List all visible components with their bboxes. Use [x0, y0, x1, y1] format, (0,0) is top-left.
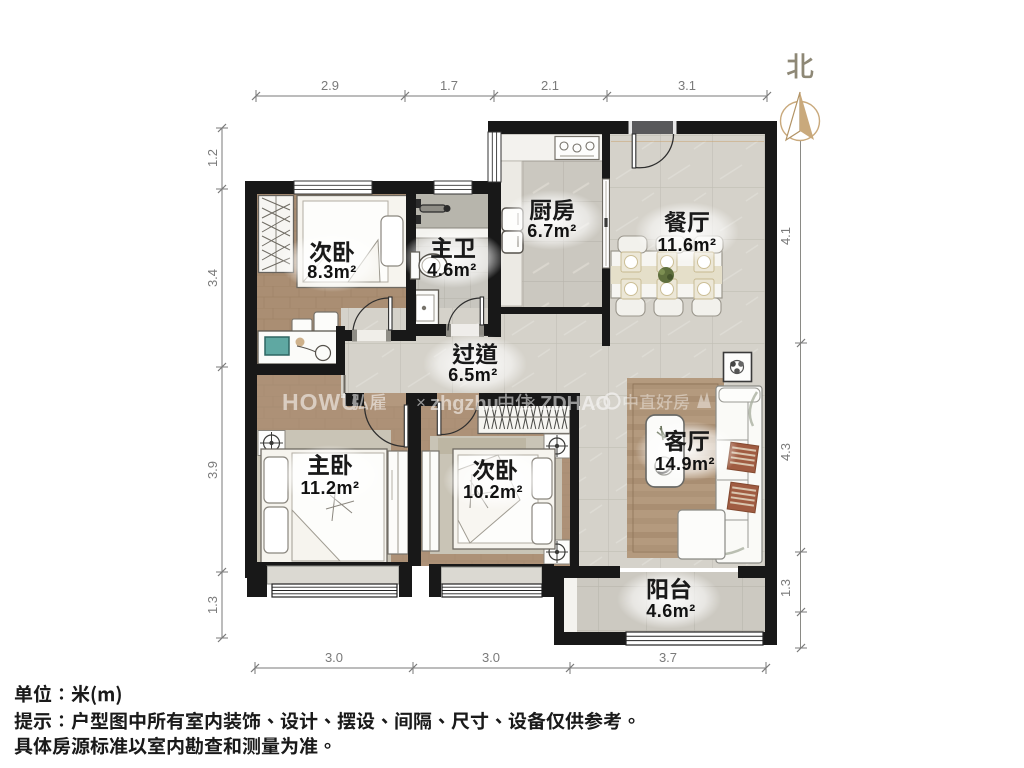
- svg-text:2.9: 2.9: [321, 78, 339, 93]
- svg-text:11.2m²: 11.2m²: [300, 478, 359, 498]
- svg-text:14.9m²: 14.9m²: [655, 454, 715, 474]
- svg-text:×: ×: [526, 393, 536, 412]
- svg-text:zhgzhu: zhgzhu: [430, 393, 499, 415]
- svg-text:3.4: 3.4: [205, 269, 220, 287]
- svg-text:4.6m²: 4.6m²: [646, 601, 696, 621]
- svg-text:3.0: 3.0: [482, 650, 500, 665]
- svg-text:1.2: 1.2: [205, 149, 220, 167]
- svg-text:×: ×: [416, 393, 426, 412]
- svg-text:3.0: 3.0: [325, 650, 343, 665]
- svg-text:3.9: 3.9: [205, 461, 220, 479]
- svg-text:6.5m²: 6.5m²: [448, 365, 498, 385]
- svg-text:8.3m²: 8.3m²: [307, 262, 357, 282]
- svg-text:HOWU: HOWU: [282, 389, 359, 415]
- svg-text:3.1: 3.1: [678, 78, 696, 93]
- svg-text:1.3: 1.3: [205, 596, 220, 614]
- svg-text:1.7: 1.7: [440, 78, 458, 93]
- svg-text:4.6m²: 4.6m²: [427, 260, 477, 280]
- svg-text:10.2m²: 10.2m²: [463, 482, 523, 502]
- svg-text:4.3: 4.3: [778, 443, 793, 461]
- svg-text:6.7m²: 6.7m²: [527, 221, 577, 241]
- svg-text:3.7: 3.7: [659, 650, 677, 665]
- svg-text:2.1: 2.1: [541, 78, 559, 93]
- svg-text:11.6m²: 11.6m²: [657, 235, 716, 255]
- svg-text:4.1: 4.1: [778, 227, 793, 245]
- svg-text:1.3: 1.3: [778, 579, 793, 597]
- svg-text:ZDHAO: ZDHAO: [540, 393, 611, 415]
